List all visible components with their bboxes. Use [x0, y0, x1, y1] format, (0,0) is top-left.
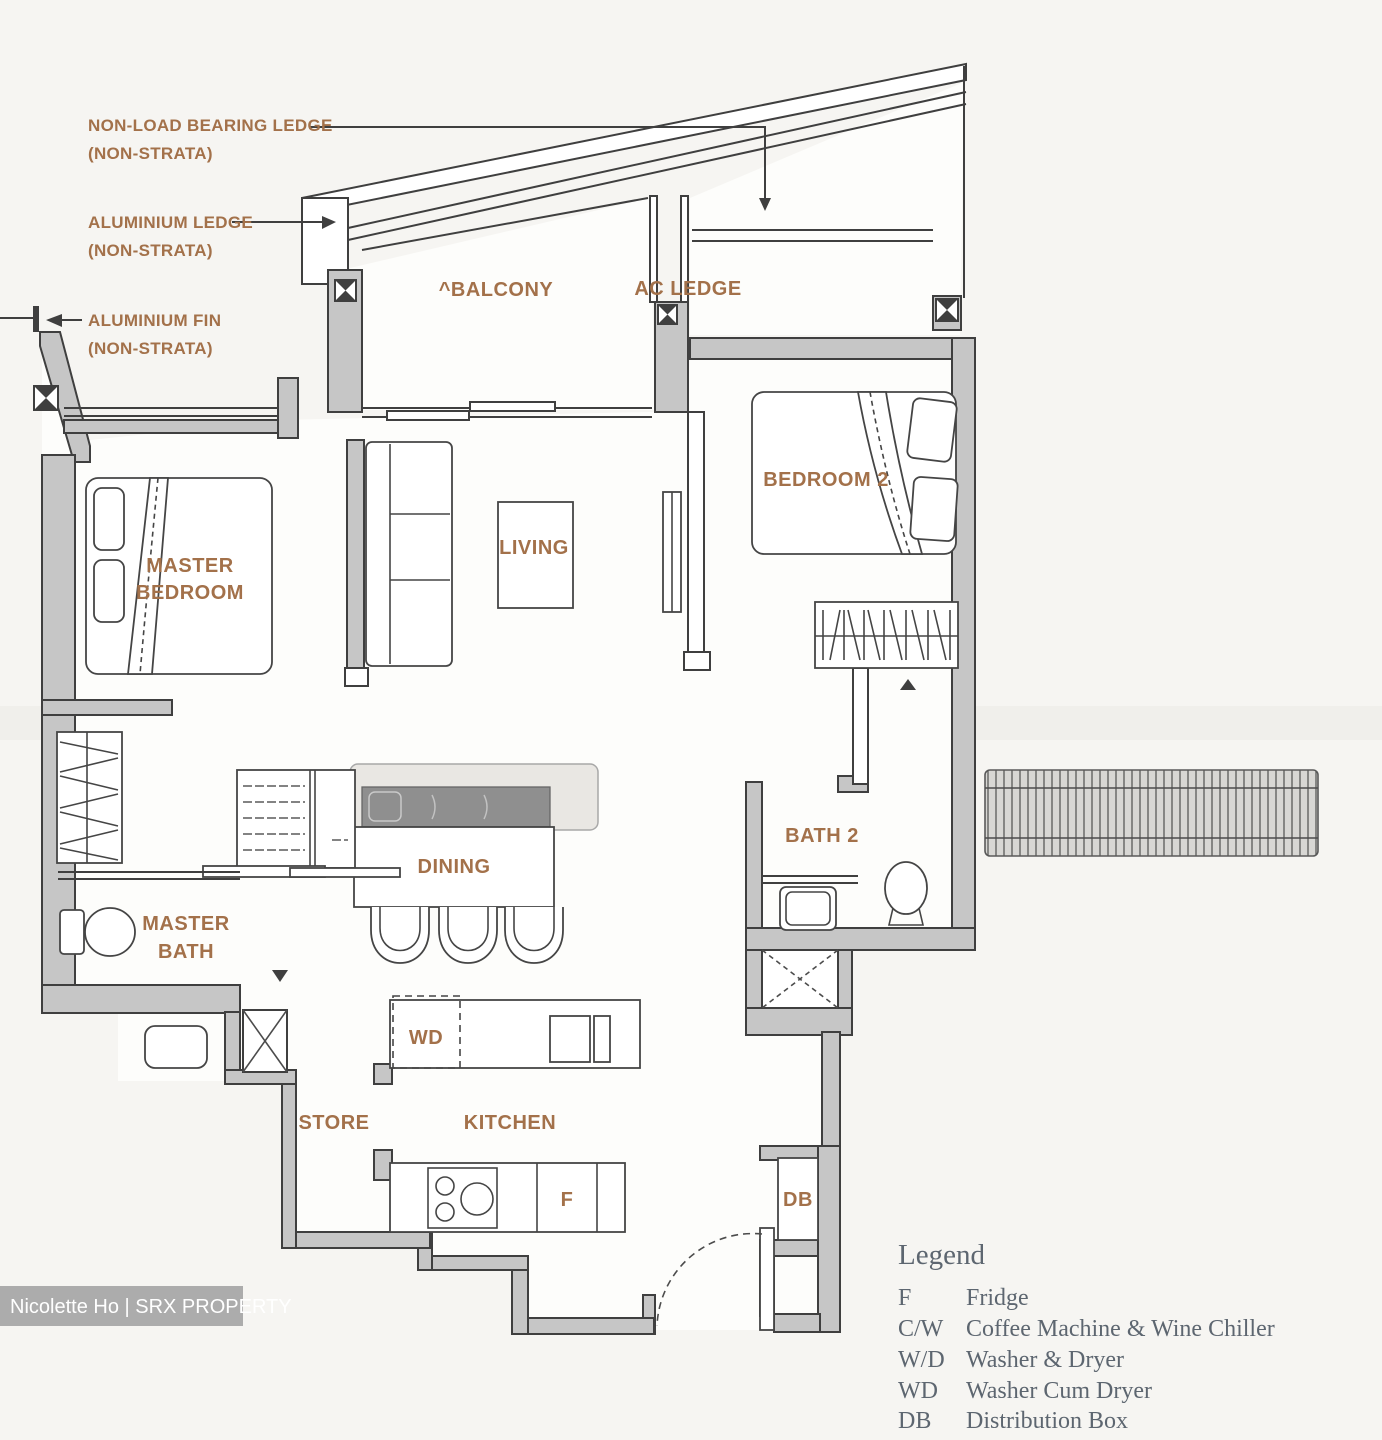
- legend-label: Fridge: [966, 1285, 1029, 1311]
- legend-title: Legend: [898, 1239, 985, 1271]
- annotation-nlb-2: (NON-STRATA): [88, 144, 213, 163]
- wall-mbath-step: [225, 1012, 240, 1078]
- legend: Legend F Fridge C/W Coffee Machine & Win…: [898, 1239, 1275, 1434]
- master-bedroom-window: [64, 408, 278, 416]
- wall-window-pier: [278, 378, 298, 438]
- legend-label: Washer & Dryer: [966, 1347, 1124, 1373]
- label-master-bedroom-1: MASTER: [146, 555, 234, 577]
- wall-shower: [853, 668, 868, 784]
- wall-shaft-left: [746, 950, 762, 1010]
- toilet-icon: [60, 908, 135, 956]
- label-balcony: ^BALCONY: [439, 279, 554, 301]
- sliding-panel-a: [387, 411, 469, 420]
- label-dining: DINING: [418, 856, 491, 878]
- wall-store-bottom: [282, 1232, 430, 1248]
- wall-mb-bottom: [42, 700, 172, 715]
- shaft-icon: [243, 1010, 287, 1072]
- label-bedroom2: BEDROOM 2: [763, 469, 889, 491]
- label-kitchen: KITCHEN: [464, 1112, 556, 1134]
- pillow: [94, 488, 124, 550]
- sink-icon: [145, 1026, 207, 1068]
- kitchen-counter-bottom: [390, 1163, 625, 1232]
- shaft-dashed-icon: [762, 950, 838, 1008]
- wall-db-right: [818, 1146, 840, 1332]
- sink-icon: [780, 887, 836, 930]
- sliding-panel-b: [470, 402, 555, 411]
- column-marker-icon: [658, 305, 677, 324]
- watermark-text: Nicolette Ho | SRX PROPERTY: [10, 1296, 292, 1318]
- annotation-ledge-1: ALUMINIUM LEDGE: [88, 213, 253, 232]
- label-ac-ledge: AC LEDGE: [634, 278, 741, 300]
- label-db: DB: [783, 1189, 813, 1211]
- wall-bedroom2-top: [690, 338, 975, 359]
- wall-shaft-right: [838, 950, 852, 1010]
- wall-shaft-bottom: [746, 1008, 852, 1035]
- label-living: LIVING: [499, 537, 569, 559]
- legend-label: Washer Cum Dryer: [966, 1378, 1152, 1404]
- pillow: [910, 477, 958, 542]
- pillow: [907, 398, 958, 463]
- sink-drainer: [594, 1016, 610, 1062]
- door-leaf: [760, 1228, 774, 1330]
- dining-chair: [505, 907, 563, 963]
- legend-abbr: W/D: [898, 1347, 945, 1373]
- wall-hall-foot: [684, 652, 710, 670]
- wall-bath2-left: [746, 782, 762, 928]
- label-wd: WD: [409, 1027, 443, 1049]
- aluminium-fin-icon: [33, 306, 39, 332]
- wall-store-left: [282, 1075, 296, 1248]
- label-bath2: BATH 2: [785, 825, 859, 847]
- wall-entry-right-jamb: [774, 1314, 820, 1332]
- external-trellis: [985, 770, 1318, 856]
- watermark: Nicolette Ho | SRX PROPERTY: [0, 1286, 292, 1326]
- counter-bar: [290, 868, 400, 877]
- wardrobe-bedroom2: [815, 602, 958, 668]
- column-marker-icon: [34, 386, 58, 410]
- annotation-fin-1: ALUMINIUM FIN: [88, 311, 221, 330]
- dining-chair: [439, 907, 497, 963]
- label-master-bedroom-2: BEDROOM: [136, 582, 244, 604]
- annotation-nlb-1: NON-LOAD BEARING LEDGE: [88, 116, 333, 135]
- sofa: [366, 442, 452, 666]
- legend-abbr: DB: [898, 1408, 931, 1434]
- column-marker-icon: [335, 280, 356, 301]
- label-master-bath-1: MASTER: [142, 913, 230, 935]
- label-fridge: F: [561, 1189, 574, 1211]
- wall-mb-foot: [345, 668, 368, 686]
- pantry-cabinet: [237, 770, 355, 868]
- pillow: [94, 560, 124, 622]
- legend-label: Coffee Machine & Wine Chiller: [966, 1316, 1275, 1342]
- wardrobe-master: [57, 732, 122, 863]
- wall-bottom-mid: [418, 1256, 528, 1270]
- wall-bottom-kitchen: [512, 1318, 654, 1334]
- wall-bath2-bottom: [746, 928, 975, 950]
- legend-abbr: F: [898, 1285, 911, 1311]
- wall-mbath-bottom: [42, 985, 240, 1013]
- label-store: STORE: [298, 1112, 369, 1134]
- fin-leader-line: [0, 318, 82, 320]
- annotation-ledge-2: (NON-STRATA): [88, 241, 213, 260]
- floorplan-page: NON-LOAD BEARING LEDGE (NON-STRATA) ALUM…: [0, 0, 1382, 1440]
- left-arrow-icon: [46, 314, 62, 327]
- kitchen-island: [350, 764, 598, 830]
- label-master-bath-2: BATH: [158, 941, 214, 963]
- wall-db-connector: [822, 1032, 840, 1148]
- wall-mb-right: [347, 440, 364, 684]
- wall-hall: [688, 412, 704, 655]
- trellis-hatch: [985, 770, 1318, 856]
- wall-window-sill: [64, 420, 278, 433]
- dining-chair: [371, 907, 429, 963]
- legend-abbr: C/W: [898, 1316, 944, 1342]
- floorplan-drawing: NON-LOAD BEARING LEDGE (NON-STRATA) ALUM…: [0, 0, 1382, 1440]
- legend-abbr: WD: [898, 1378, 938, 1404]
- column-marker-icon: [936, 299, 958, 321]
- sink-icon: [550, 1016, 590, 1062]
- legend-label: Distribution Box: [966, 1408, 1128, 1434]
- sliding-door-panel: [663, 492, 681, 612]
- annotation-fin-2: (NON-STRATA): [88, 339, 213, 358]
